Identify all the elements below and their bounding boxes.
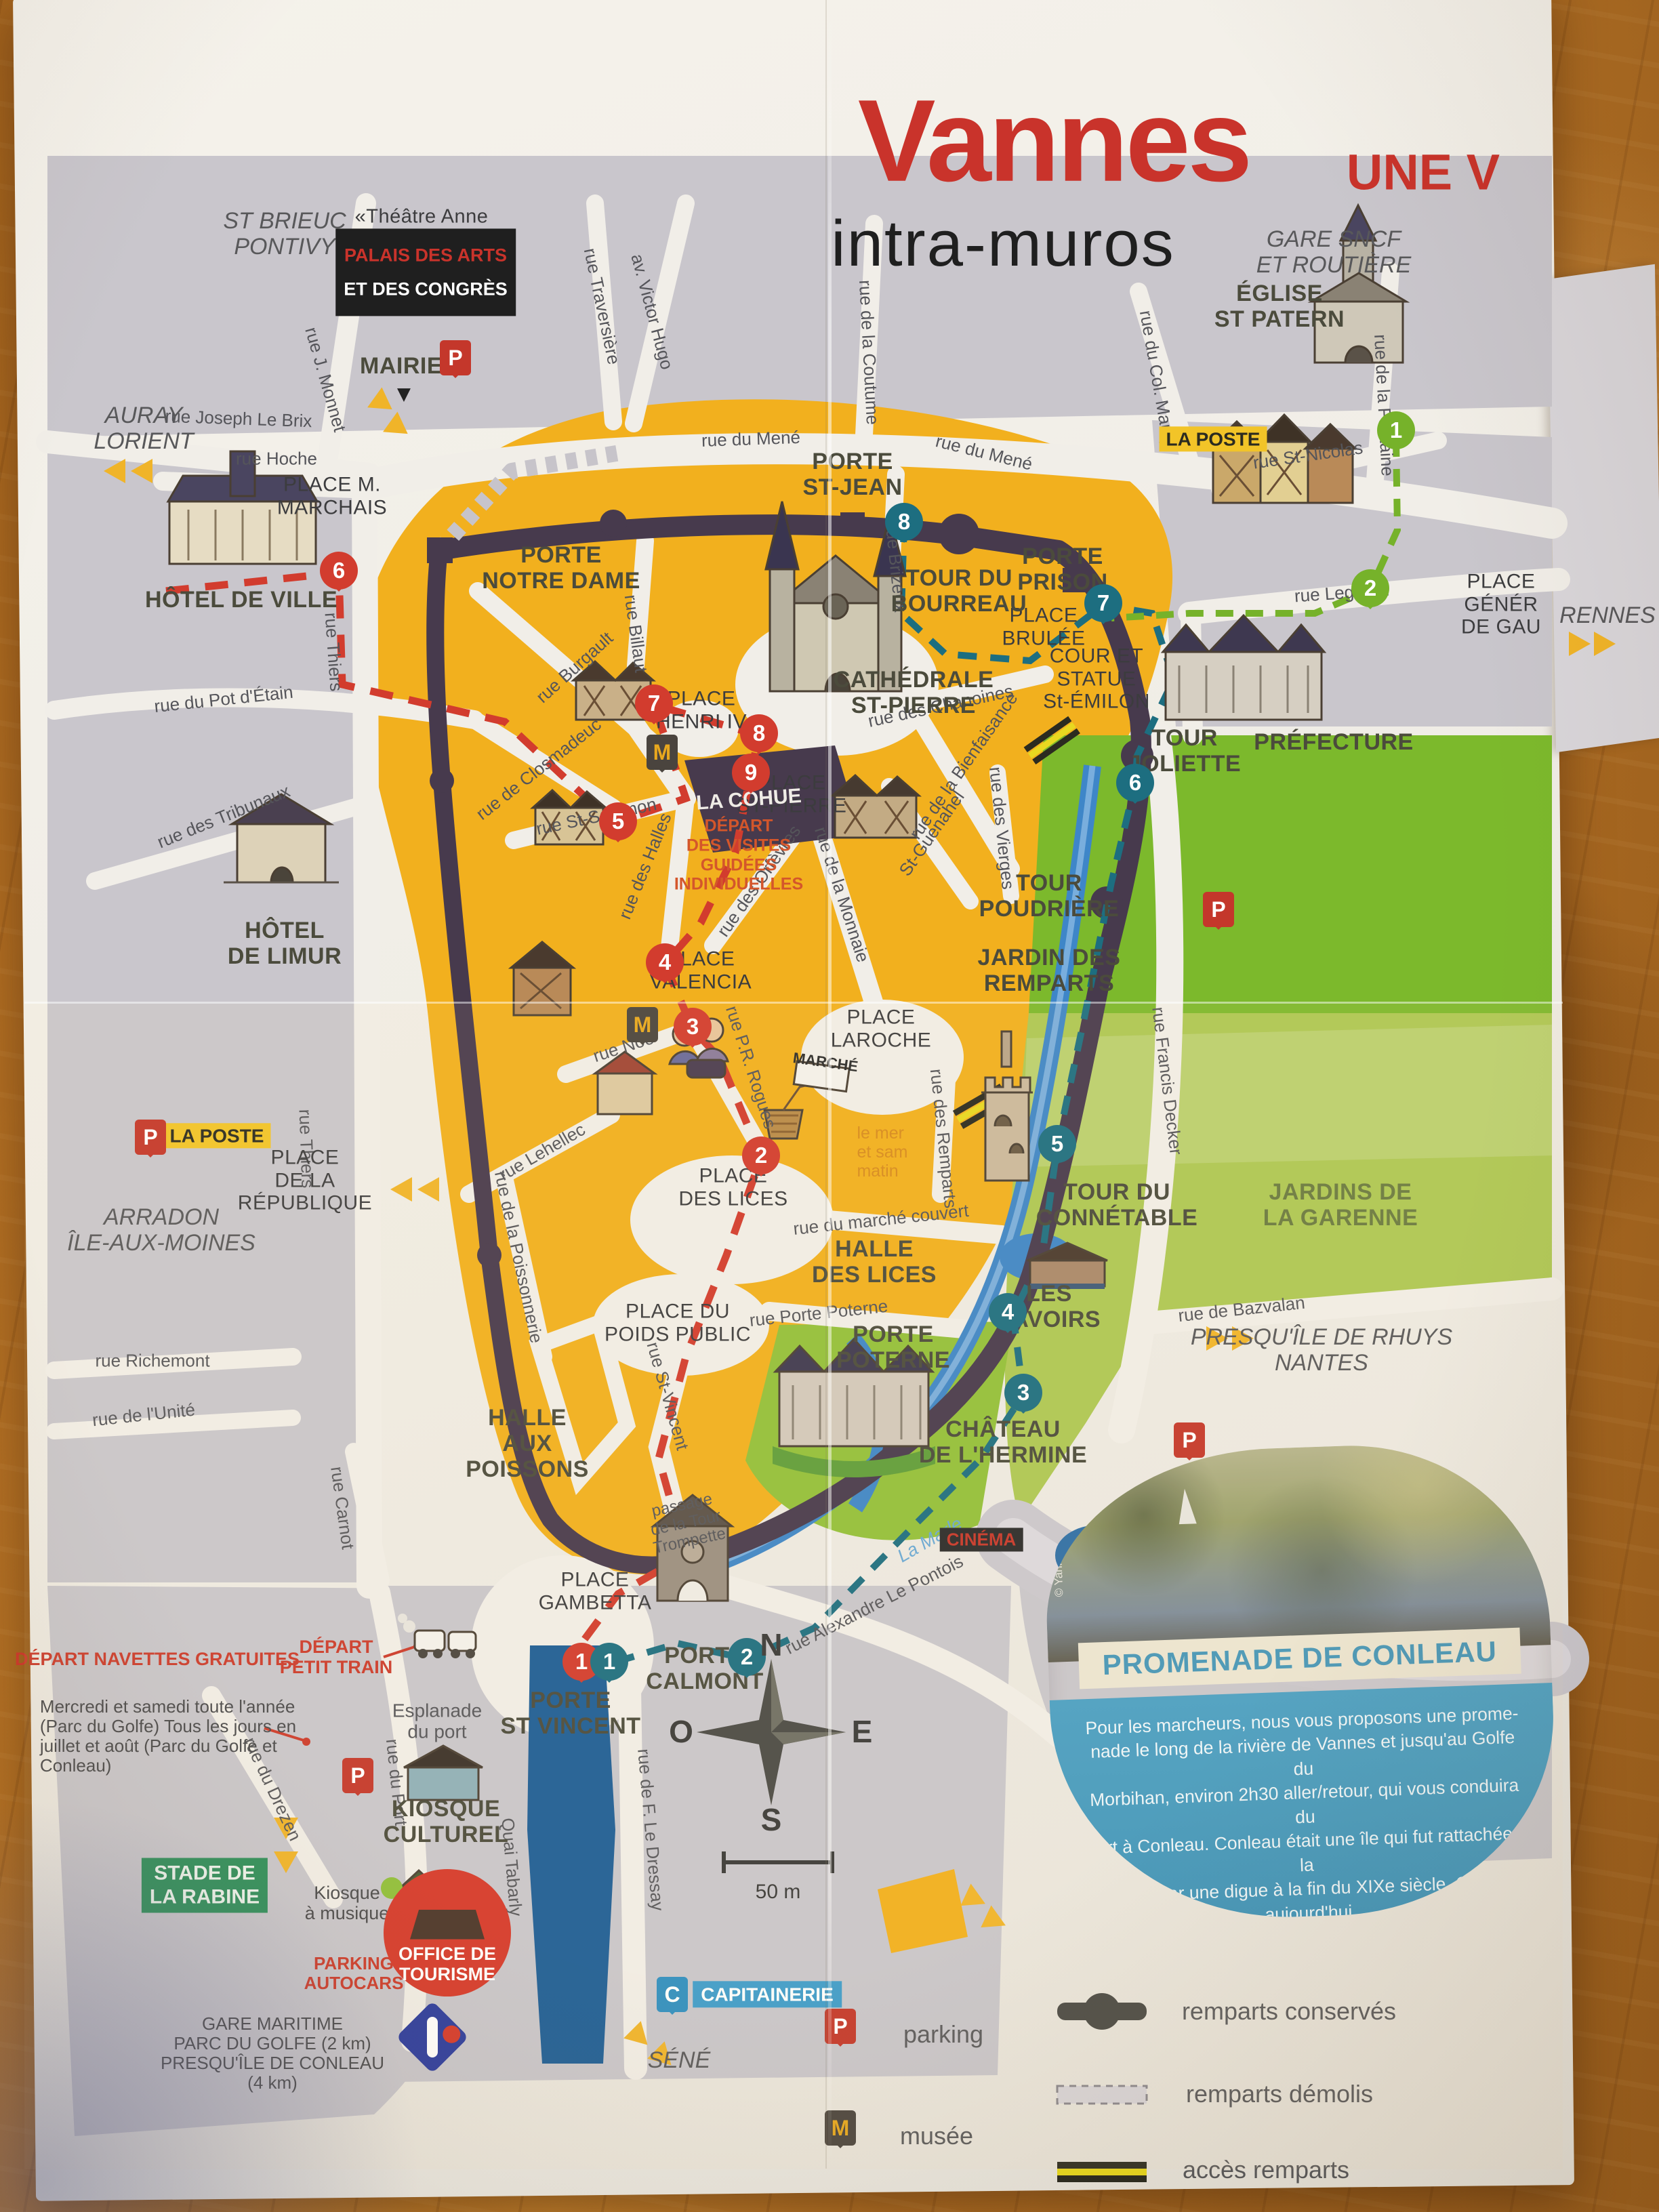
photo-vignette: [0, 0, 1659, 2212]
photo-of-vannes-map: Vannes UNE V intra-muros ST BRIEUC PONTI…: [0, 0, 1659, 2212]
